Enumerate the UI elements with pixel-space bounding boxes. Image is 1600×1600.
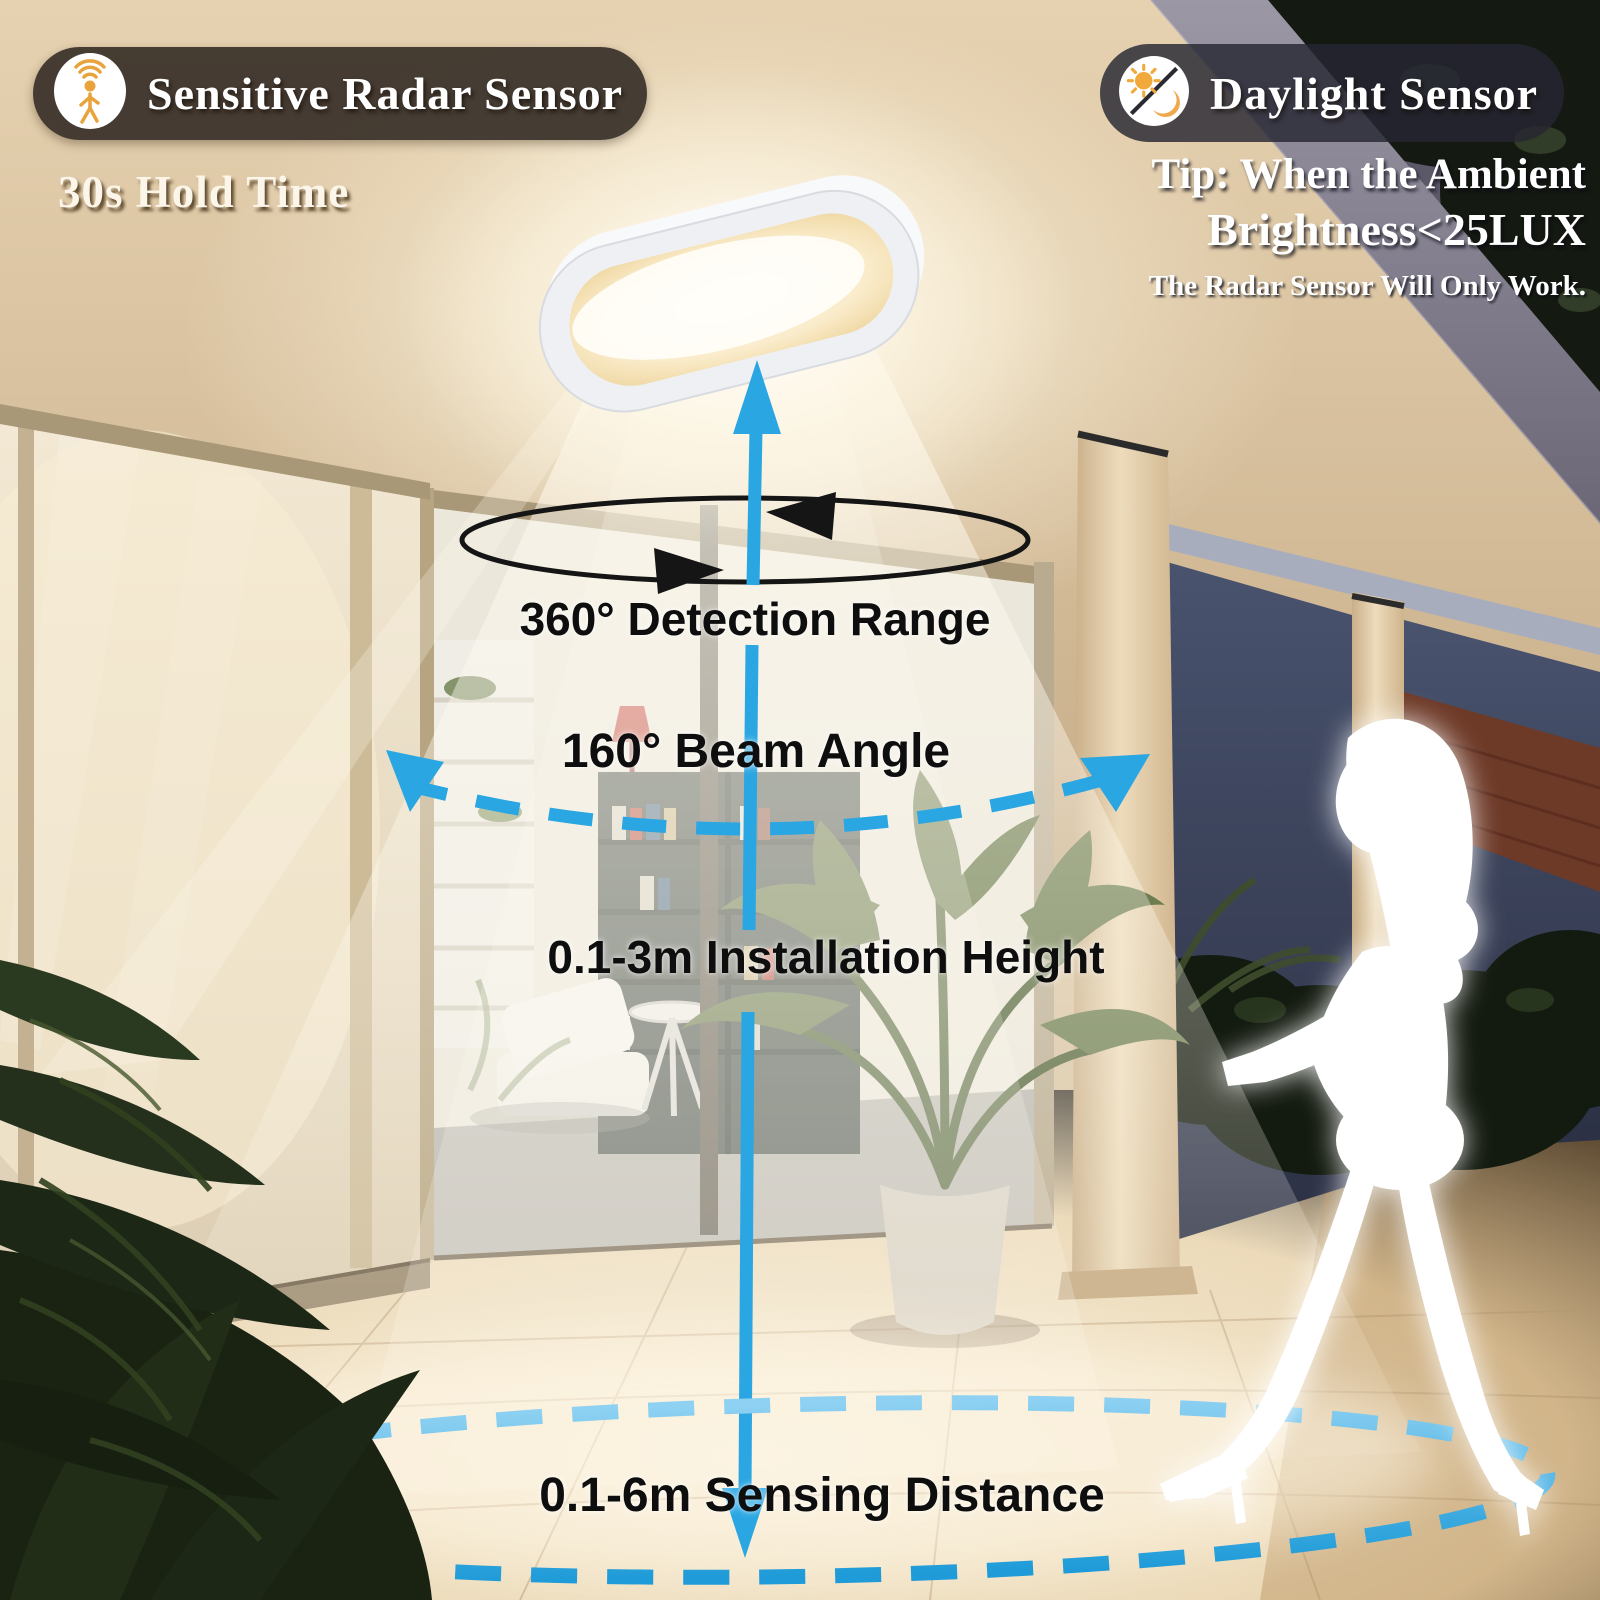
sensing-distance-label: 0.1-6m Sensing Distance [512, 1468, 1132, 1523]
beam-angle-label: 160° Beam Angle [546, 724, 966, 779]
product-infographic: Sensitive Radar Sensor 30s Hold Time Day… [0, 0, 1600, 1600]
daylight-badge-label: Daylight Sensor [1210, 67, 1538, 120]
sun-moon-icon [1118, 55, 1190, 132]
walking-person-radar-icon [53, 52, 127, 135]
daylight-sensor-badge: Daylight Sensor [1100, 44, 1564, 142]
daylight-tip: Tip: When the Ambient Brightness<25LUX T… [1026, 150, 1586, 303]
radar-sensor-badge: Sensitive Radar Sensor [33, 47, 647, 140]
installation-height-label: 0.1-3m Installation Height [518, 930, 1134, 984]
tip-line-1: Tip: When the Ambient [1026, 150, 1586, 199]
radar-badge-label: Sensitive Radar Sensor [147, 67, 623, 120]
tip-line-3: The Radar Sensor Will Only Work. [1026, 270, 1586, 303]
hold-time-text: 30s Hold Time [58, 166, 349, 218]
tip-line-2: Brightness<25LUX [1026, 203, 1586, 256]
detection-range-label: 360° Detection Range [500, 592, 1010, 646]
